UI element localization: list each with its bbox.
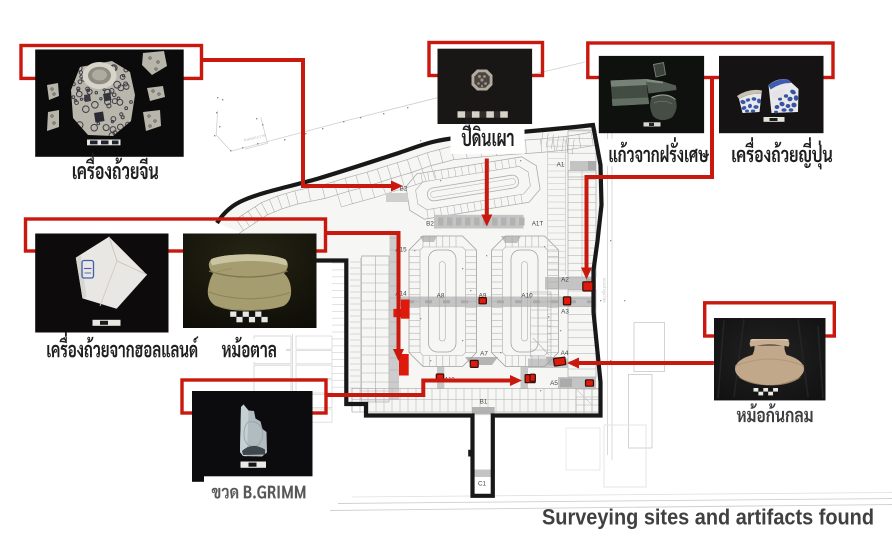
svg-text:A3: A3: [561, 309, 569, 316]
svg-text:A2: A2: [561, 277, 569, 284]
svg-text:A7: A7: [480, 351, 488, 358]
svg-text:B2: B2: [426, 221, 434, 228]
svg-text:A4: A4: [561, 350, 569, 357]
svg-text:B1: B1: [480, 398, 488, 405]
svg-text:A1: A1: [557, 162, 565, 169]
svg-text:C1: C1: [478, 481, 487, 488]
svg-text:A1T: A1T: [532, 221, 544, 228]
svg-text:A10: A10: [521, 292, 533, 299]
svg-text:Surveying sites and artifacts: Surveying sites and artifacts found: [542, 505, 874, 530]
svg-text:A8: A8: [437, 292, 445, 299]
svg-text:A5: A5: [550, 380, 558, 387]
